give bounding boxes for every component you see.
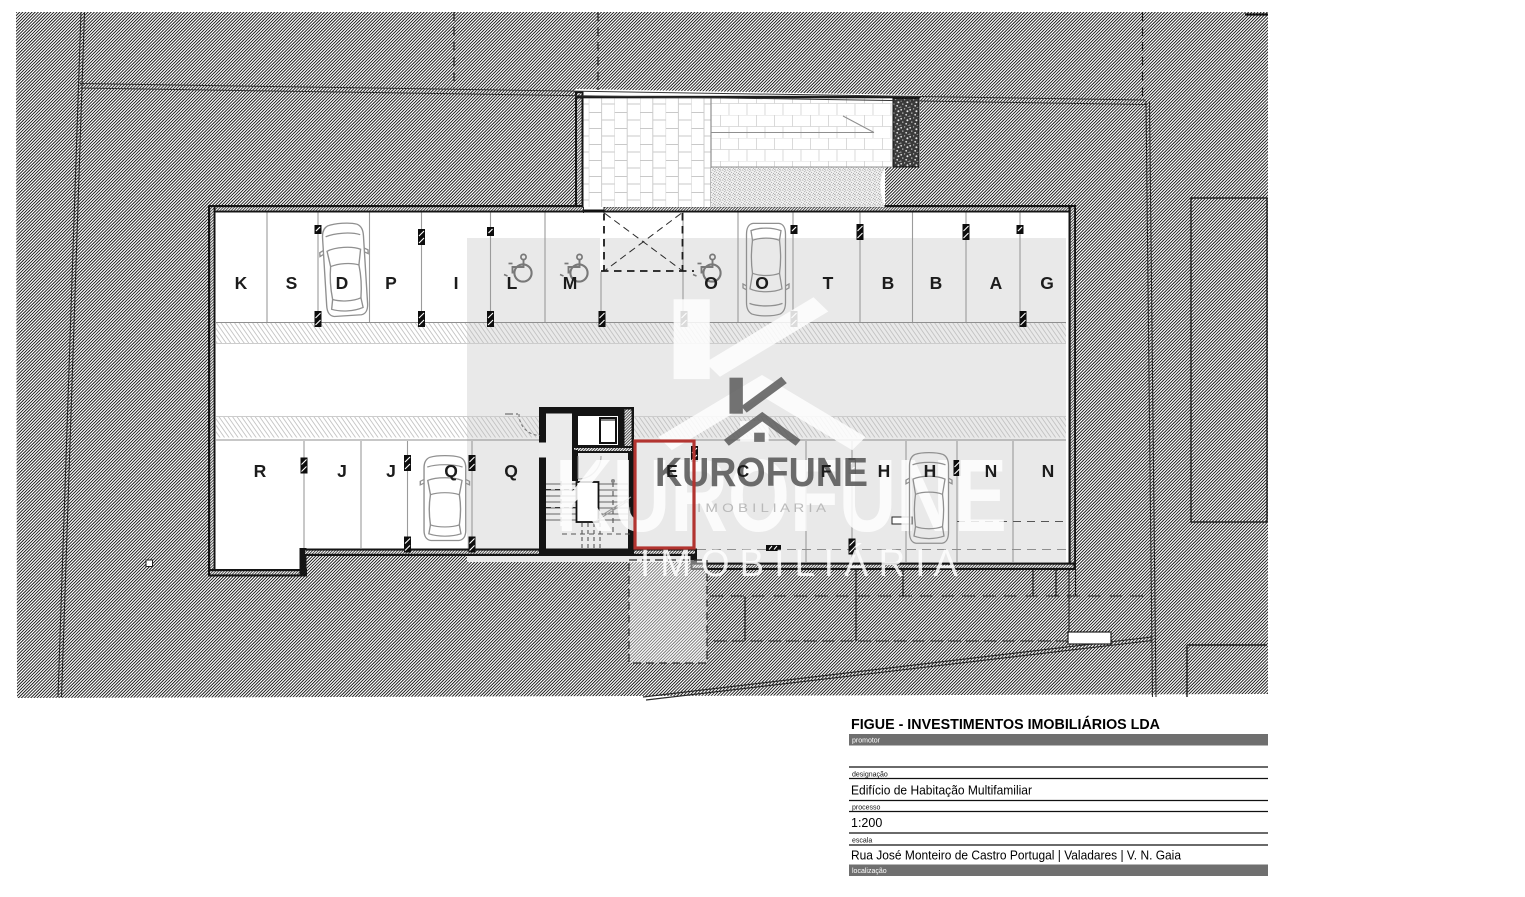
- svg-text:L: L: [507, 273, 518, 293]
- svg-text:P: P: [385, 273, 397, 293]
- svg-text:designação: designação: [852, 772, 888, 779]
- svg-text:processo: processo: [852, 805, 881, 812]
- svg-text:M: M: [563, 273, 578, 293]
- svg-text:H: H: [924, 461, 937, 481]
- svg-text:H: H: [878, 461, 891, 481]
- svg-text:Rua José Monteiro de Castro Po: Rua José Monteiro de Castro Portugal | V…: [851, 849, 1181, 863]
- svg-text:A: A: [990, 273, 1003, 293]
- svg-text:J: J: [337, 461, 347, 481]
- svg-text:localização: localização: [852, 868, 887, 875]
- svg-text:G: G: [1040, 273, 1054, 293]
- svg-text:R: R: [254, 461, 267, 481]
- svg-text:F: F: [821, 461, 832, 481]
- svg-text:C: C: [737, 461, 750, 481]
- svg-text:Q: Q: [504, 461, 518, 481]
- svg-text:O: O: [755, 273, 769, 293]
- svg-text:B: B: [882, 273, 895, 293]
- svg-text:1:200: 1:200: [851, 816, 882, 830]
- svg-text:O: O: [704, 273, 718, 293]
- svg-text:FIGUE - INVESTIMENTOS IMOBILIÁ: FIGUE - INVESTIMENTOS IMOBILIÁRIOS LDA: [851, 716, 1161, 733]
- svg-text:escala: escala: [852, 838, 872, 845]
- svg-text:promotor: promotor: [852, 738, 881, 745]
- svg-text:N: N: [985, 461, 998, 481]
- svg-text:I M O B I L I A R I A: I M O B I L I A R I A: [697, 503, 826, 515]
- svg-text:D: D: [336, 273, 349, 293]
- svg-text:T: T: [823, 273, 834, 293]
- svg-text:K: K: [235, 273, 248, 293]
- svg-text:S: S: [286, 273, 298, 293]
- svg-text:I: I: [454, 273, 459, 293]
- svg-text:KUROFUNE: KUROFUNE: [655, 449, 868, 495]
- svg-text:N: N: [1042, 461, 1055, 481]
- svg-text:Q: Q: [444, 461, 458, 481]
- svg-text:J: J: [386, 461, 396, 481]
- svg-text:E: E: [666, 461, 678, 481]
- svg-text:Edifício de Habitação Multifam: Edifício de Habitação Multifamiliar: [851, 784, 1032, 798]
- svg-text:B: B: [930, 273, 943, 293]
